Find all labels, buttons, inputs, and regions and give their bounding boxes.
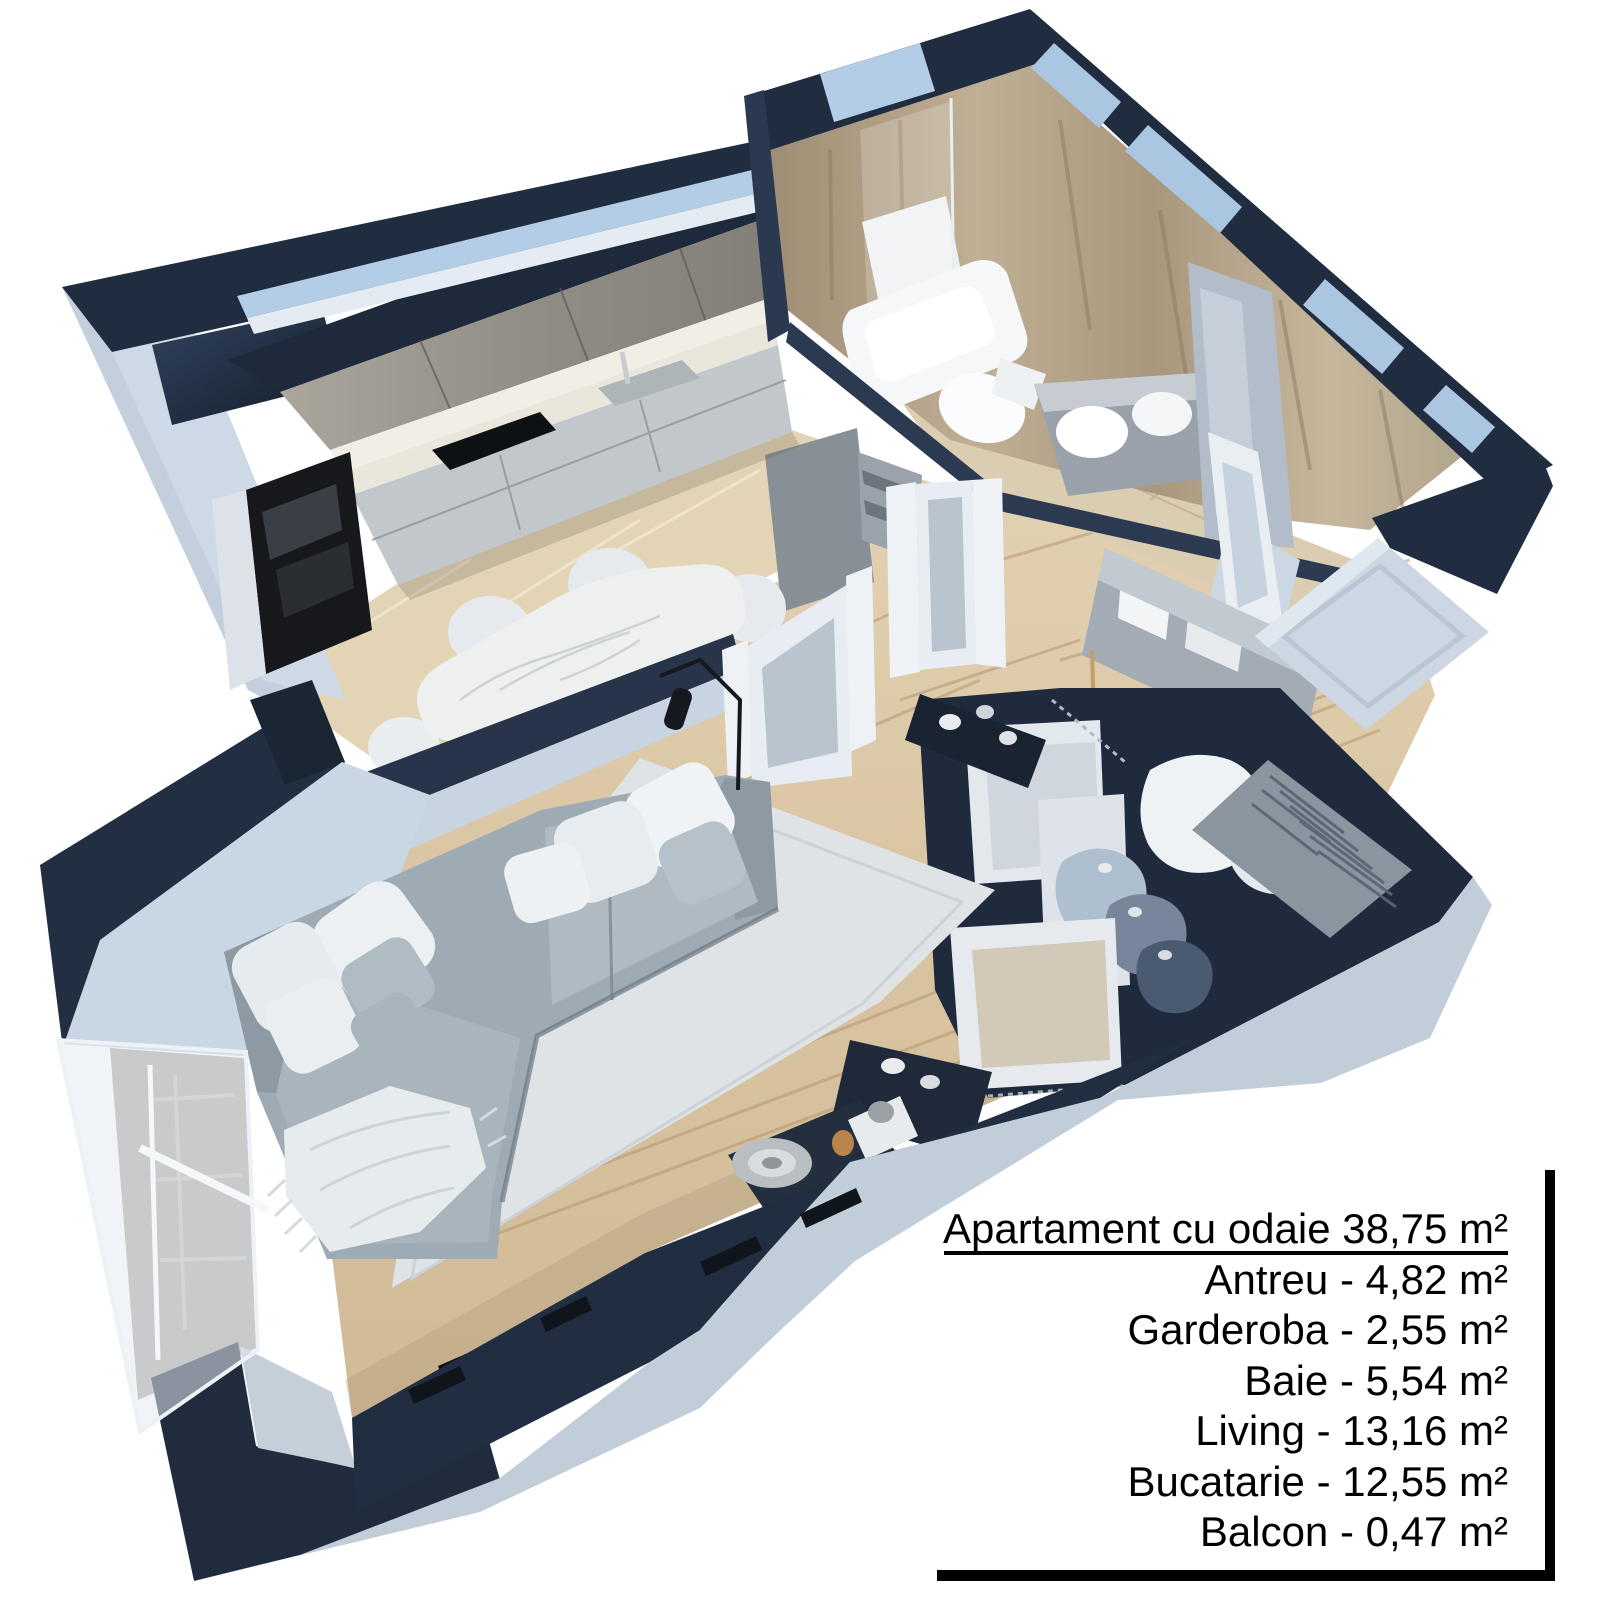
svg-text:Baie - 5,54 m²: Baie - 5,54 m² (1244, 1357, 1508, 1404)
svg-text:Apartament cu odaie 38,75 m²: Apartament cu odaie 38,75 m² (943, 1205, 1508, 1252)
svg-text:Antreu - 4,82 m²: Antreu - 4,82 m² (1205, 1256, 1508, 1303)
svg-text:Bucatarie - 12,55 m²: Bucatarie - 12,55 m² (1127, 1458, 1508, 1505)
svg-text:Balcon - 0,47 m²: Balcon - 0,47 m² (1200, 1508, 1508, 1555)
svg-text:Garderoba - 2,55 m²: Garderoba - 2,55 m² (1127, 1306, 1508, 1353)
svg-text:Living - 13,16 m²: Living - 13,16 m² (1195, 1407, 1508, 1454)
